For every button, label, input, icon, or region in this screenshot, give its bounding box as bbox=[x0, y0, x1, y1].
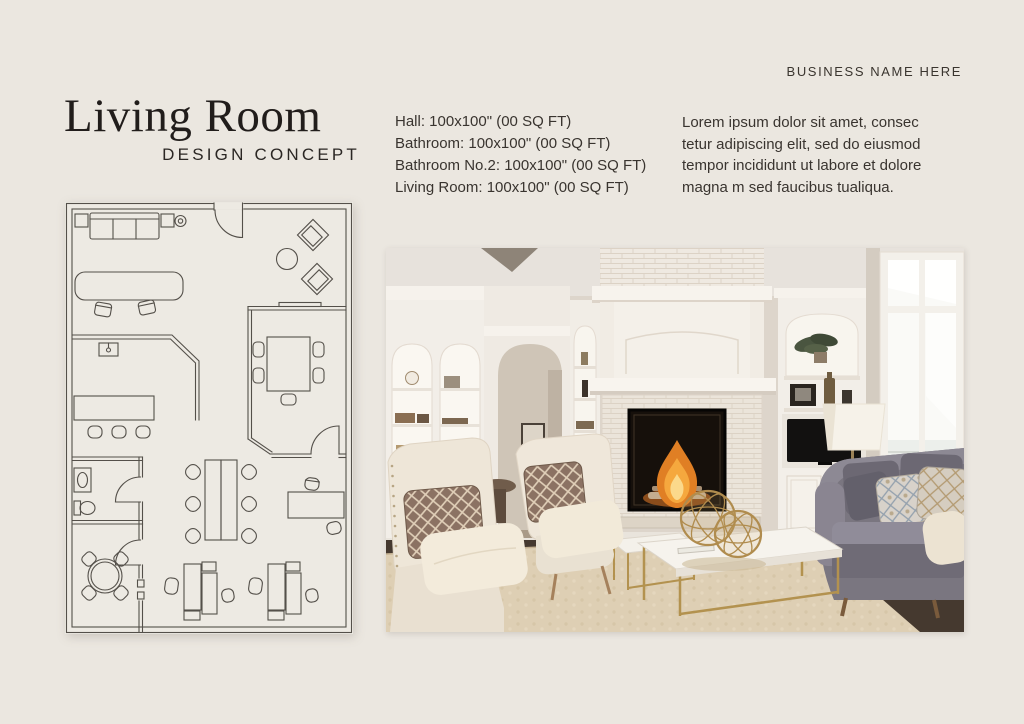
description-line: tempor incididunt ut labore et dolore bbox=[682, 155, 982, 177]
books bbox=[395, 413, 415, 423]
description-text: Lorem ipsum dolor sit amet, consec tetur… bbox=[682, 112, 982, 198]
floor-plan-svg bbox=[65, 202, 353, 634]
bottle bbox=[582, 380, 588, 397]
clock bbox=[406, 372, 419, 385]
page-title: Living Room bbox=[64, 92, 360, 141]
business-name: BUSINESS NAME HERE bbox=[787, 64, 962, 79]
jug bbox=[824, 378, 835, 406]
fireplace bbox=[590, 248, 776, 528]
fireplace-crown bbox=[592, 286, 772, 302]
plan-background bbox=[65, 202, 353, 634]
design-concept-page: BUSINESS NAME HERE Living Room DESIGN CO… bbox=[0, 0, 1024, 724]
title-block: Living Room DESIGN CONCEPT bbox=[64, 92, 360, 165]
mantel-shelf bbox=[590, 378, 776, 391]
measurement-line: Living Room: 100x100" (00 SQ FT) bbox=[395, 177, 646, 199]
description-line: magna m sed faucibus tualiqua. bbox=[682, 177, 982, 199]
measurement-line: Bathroom No.2: 100x100" (00 SQ FT) bbox=[395, 155, 646, 177]
room-measurements: Hall: 100x100" (00 SQ FT) Bathroom: 100x… bbox=[395, 111, 646, 199]
page-subtitle: DESIGN CONCEPT bbox=[64, 145, 360, 165]
floor-plan bbox=[65, 202, 353, 634]
living-room-photo-svg bbox=[386, 248, 964, 632]
living-room-photo bbox=[386, 248, 964, 632]
description-line: Lorem ipsum dolor sit amet, consec bbox=[682, 112, 982, 134]
description-line: tetur adipiscing elit, sed do eiusmod bbox=[682, 134, 982, 156]
measurement-line: Bathroom: 100x100" (00 SQ FT) bbox=[395, 133, 646, 155]
measurement-line: Hall: 100x100" (00 SQ FT) bbox=[395, 111, 646, 133]
vase bbox=[581, 352, 588, 365]
